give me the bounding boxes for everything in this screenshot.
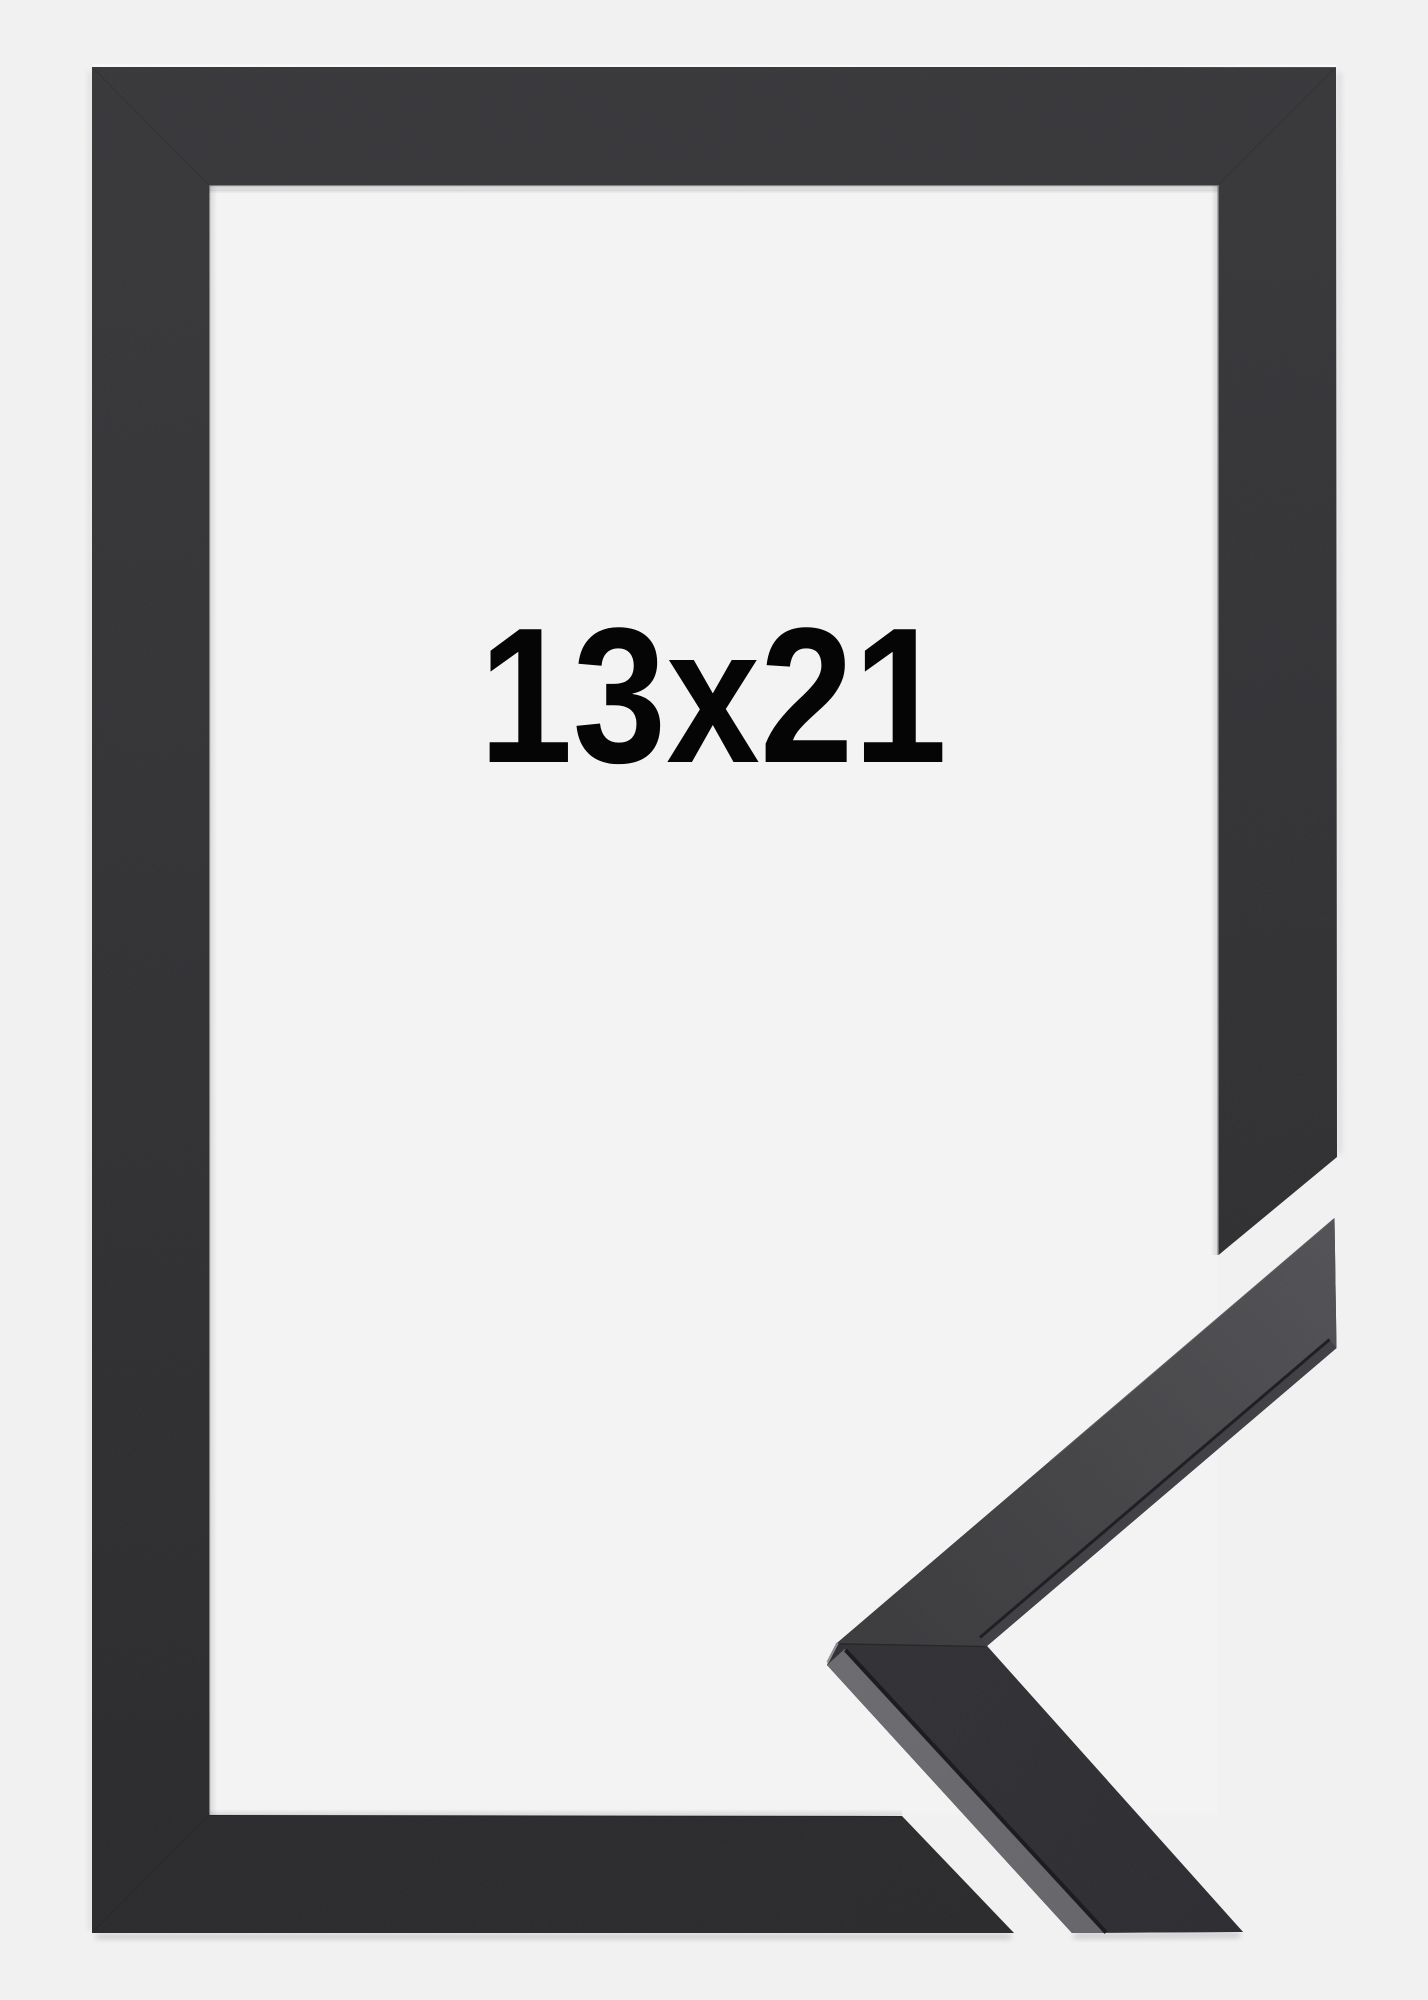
svg-text:13x21: 13x21 xyxy=(479,588,947,803)
